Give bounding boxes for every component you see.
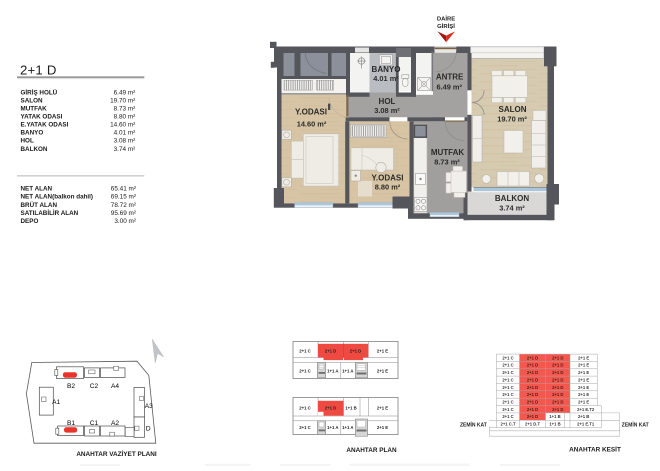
svg-text:BRÜT ALAN: BRÜT ALAN — [21, 200, 58, 209]
svg-text:2+1 C: 2+1 C — [502, 355, 513, 360]
svg-text:2+1 C: 2+1 C — [299, 406, 311, 411]
svg-text:2+1 E: 2+1 E — [377, 348, 388, 353]
svg-text:1+1 B: 1+1 B — [549, 422, 560, 427]
svg-text:2+1 C: 2+1 C — [502, 414, 513, 419]
svg-text:GİRİŞ HOLÜ: GİRİŞ HOLÜ — [21, 87, 58, 96]
svg-text:SATILABİLİR ALAN: SATILABİLİR ALAN — [21, 209, 79, 217]
svg-text:NET ALAN: NET ALAN — [21, 185, 53, 192]
svg-text:2+1 C: 2+1 C — [502, 400, 513, 405]
svg-text:C2: C2 — [90, 383, 99, 390]
svg-text:BANYO: BANYO — [21, 130, 44, 137]
svg-text:2+1 E: 2+1 E — [578, 400, 589, 405]
svg-text:2+1 D: 2+1 D — [325, 348, 337, 353]
svg-text:1+1 A: 1+1 A — [342, 368, 353, 373]
svg-text:BANYO: BANYO — [372, 65, 401, 74]
svg-text:SALON: SALON — [21, 97, 43, 104]
svg-text:2+1 D: 2+1 D — [552, 400, 563, 405]
svg-text:4.01 m²: 4.01 m² — [373, 74, 399, 83]
svg-text:2+1 D: 2+1 D — [527, 392, 538, 397]
svg-text:2+1 C.T: 2+1 C.T — [500, 422, 515, 427]
svg-text:6.49 m²: 6.49 m² — [436, 83, 462, 92]
svg-text:2+1 D: 2+1 D — [527, 377, 538, 382]
svg-text:8.80 m²: 8.80 m² — [375, 183, 401, 192]
svg-text:2+1 E.T2: 2+1 E.T2 — [577, 407, 595, 412]
svg-text:2+1 B: 2+1 B — [578, 414, 589, 419]
svg-text:2+1 E: 2+1 E — [377, 368, 388, 373]
svg-text:3.08 m²: 3.08 m² — [114, 138, 136, 145]
svg-text:A4: A4 — [111, 383, 119, 390]
svg-text:1+1 A: 1+1 A — [342, 425, 353, 430]
svg-text:2+1 D: 2+1 D — [552, 377, 563, 382]
svg-text:2+1 E: 2+1 E — [578, 355, 589, 360]
svg-text:2+1 E.T1: 2+1 E.T1 — [577, 422, 595, 427]
svg-text:HOL: HOL — [21, 138, 34, 145]
svg-text:A2: A2 — [111, 420, 119, 427]
svg-text:ANAHTAR KESİT: ANAHTAR KESİT — [569, 444, 621, 453]
svg-text:E.YATAK ODASI: E.YATAK ODASI — [21, 122, 69, 129]
svg-text:2+1 D: 2+1 D — [527, 363, 538, 368]
svg-text:3.74 m²: 3.74 m² — [114, 146, 136, 153]
svg-text:DEPO: DEPO — [21, 218, 39, 225]
svg-text:C1: C1 — [90, 420, 99, 427]
svg-text:BALKON: BALKON — [21, 146, 48, 153]
svg-text:2+1 D: 2+1 D — [552, 385, 563, 390]
svg-text:2+1 C: 2+1 C — [299, 368, 311, 373]
svg-text:78.72 m²: 78.72 m² — [111, 202, 136, 209]
svg-text:ANTRE: ANTRE — [436, 72, 464, 81]
svg-text:69.15 m²: 69.15 m² — [111, 194, 136, 201]
svg-text:DAİRE: DAİRE — [437, 15, 455, 22]
svg-text:ZEMİN KAT: ZEMİN KAT — [460, 421, 487, 428]
svg-text:B2: B2 — [67, 383, 75, 390]
svg-text:2+1 C: 2+1 C — [502, 385, 513, 390]
svg-text:6.49 m²: 6.49 m² — [114, 89, 136, 96]
svg-text:2+1 C: 2+1 C — [299, 348, 311, 353]
svg-text:1+1 B: 1+1 B — [345, 406, 357, 411]
svg-text:2+1 D: 2+1 D — [552, 392, 563, 397]
svg-text:2+1 D: 2+1 D — [527, 385, 538, 390]
svg-text:2+1 D: 2+1 D — [350, 348, 362, 353]
svg-text:A1: A1 — [52, 399, 60, 406]
svg-text:2+1 D: 2+1 D — [325, 406, 337, 411]
svg-text:2+1 D: 2+1 D — [552, 407, 563, 412]
svg-text:19.70 m²: 19.70 m² — [497, 115, 527, 124]
svg-text:2+1 C: 2+1 C — [502, 407, 513, 412]
svg-text:8.73 m²: 8.73 m² — [434, 158, 460, 167]
svg-text:2+1 D: 2+1 D — [20, 63, 57, 78]
svg-text:1+1 A: 1+1 A — [327, 425, 338, 430]
svg-text:Y.ODASI: Y.ODASI — [371, 173, 403, 182]
svg-text:14.60 m²: 14.60 m² — [297, 119, 327, 128]
svg-text:NET ALAN(balkon dahil): NET ALAN(balkon dahil) — [21, 194, 94, 201]
svg-text:ANAHTAR VAZİYET PLANI: ANAHTAR VAZİYET PLANI — [76, 449, 157, 458]
svg-text:Y.ODASI: Y.ODASI — [295, 108, 327, 117]
svg-text:2+1 D: 2+1 D — [552, 363, 563, 368]
svg-text:2+1 E: 2+1 E — [377, 425, 388, 430]
svg-text:2+1 C: 2+1 C — [502, 363, 513, 368]
svg-text:3.74 m²: 3.74 m² — [499, 204, 525, 213]
svg-text:2+1 D: 2+1 D — [527, 400, 538, 405]
svg-text:2+1 E: 2+1 E — [578, 363, 589, 368]
svg-text:ANAHTAR PLAN: ANAHTAR PLAN — [346, 447, 397, 454]
svg-text:65.41 m²: 65.41 m² — [111, 185, 136, 192]
svg-text:1+1 B: 1+1 B — [549, 414, 560, 419]
svg-text:14.60 m²: 14.60 m² — [110, 122, 135, 129]
svg-text:2+1 C: 2+1 C — [502, 392, 513, 397]
svg-text:A3: A3 — [145, 403, 153, 410]
svg-text:MUTFAK: MUTFAK — [21, 105, 48, 112]
svg-text:1+1 A: 1+1 A — [327, 368, 338, 373]
svg-text:2+1 D.T: 2+1 D.T — [525, 422, 540, 427]
svg-text:2+1 C: 2+1 C — [502, 370, 513, 375]
svg-text:B1: B1 — [67, 420, 75, 427]
svg-text:4.01 m²: 4.01 m² — [114, 130, 136, 137]
svg-text:D: D — [146, 426, 151, 433]
svg-text:2+1 C: 2+1 C — [299, 425, 311, 430]
svg-text:2+1 E: 2+1 E — [578, 392, 589, 397]
svg-text:2+1 D: 2+1 D — [527, 414, 538, 419]
svg-text:BALKON: BALKON — [495, 194, 529, 203]
svg-text:2+1 D: 2+1 D — [527, 370, 538, 375]
svg-text:MUTFAK: MUTFAK — [431, 148, 465, 157]
svg-text:2+1 C: 2+1 C — [502, 377, 513, 382]
svg-text:3.00 m²: 3.00 m² — [114, 218, 136, 225]
svg-text:SALON: SALON — [499, 105, 527, 114]
svg-text:2+1 E: 2+1 E — [377, 406, 388, 411]
svg-text:2+1 D: 2+1 D — [552, 370, 563, 375]
svg-text:2+1 E: 2+1 E — [578, 370, 589, 375]
svg-text:2+1 D: 2+1 D — [552, 355, 563, 360]
svg-text:2+1 E: 2+1 E — [578, 385, 589, 390]
svg-text:19.70 m²: 19.70 m² — [110, 97, 135, 104]
svg-text:HOL: HOL — [379, 97, 396, 106]
svg-text:2+1 D: 2+1 D — [527, 355, 538, 360]
svg-text:3.08 m²: 3.08 m² — [374, 106, 400, 115]
svg-text:8.73 m²: 8.73 m² — [114, 105, 136, 112]
svg-text:2+1 E: 2+1 E — [578, 377, 589, 382]
svg-text:GİRİŞİ: GİRİŞİ — [437, 23, 455, 30]
svg-text:ZEMİN KAT: ZEMİN KAT — [622, 421, 649, 428]
svg-text:YATAK ODASI: YATAK ODASI — [21, 114, 63, 121]
svg-text:8.80 m²: 8.80 m² — [114, 114, 136, 121]
svg-text:2+1 D: 2+1 D — [527, 407, 538, 412]
svg-text:95.69 m²: 95.69 m² — [111, 210, 136, 217]
